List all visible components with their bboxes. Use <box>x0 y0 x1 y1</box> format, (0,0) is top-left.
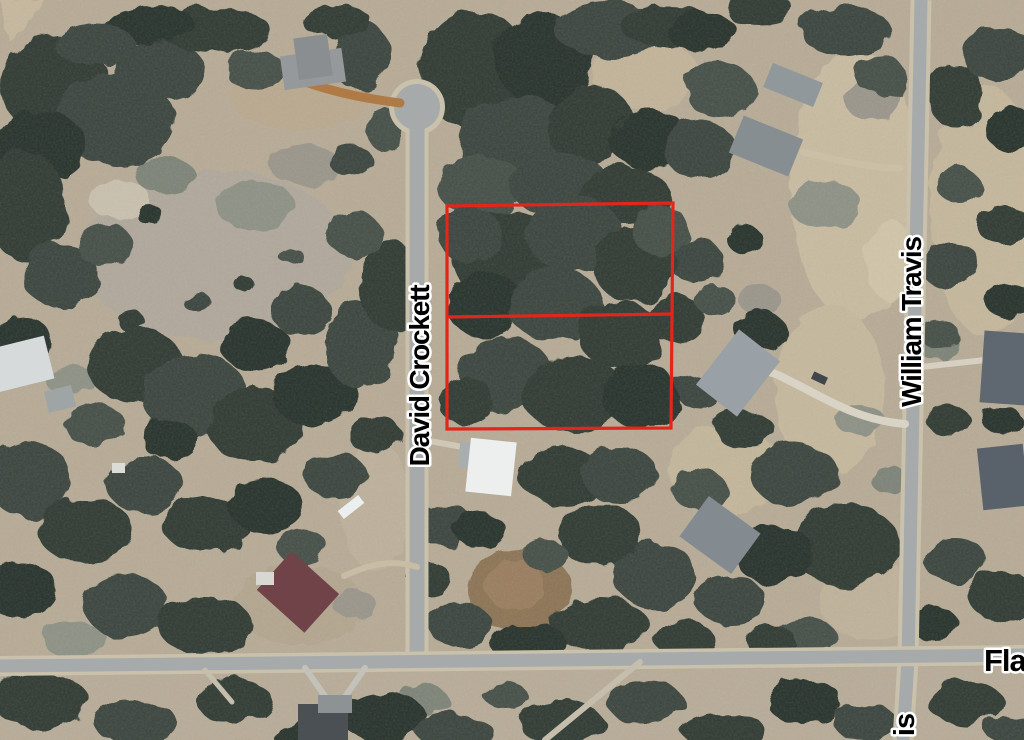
building-roof <box>980 330 1024 405</box>
building-roof <box>977 444 1024 510</box>
street-label-travis-partial: is <box>889 714 921 736</box>
building-roof <box>293 34 333 80</box>
street-label-william-travis: William Travis <box>896 237 927 407</box>
satellite-map[interactable]: David Crockett William Travis Fla is <box>0 0 1024 740</box>
street-label-david-crockett: David Crockett <box>404 285 435 467</box>
building-roof <box>112 463 125 473</box>
road-horizontal <box>0 655 1024 666</box>
building-roof <box>256 572 274 585</box>
building-roof <box>465 438 516 497</box>
terrain-texture <box>0 0 1024 740</box>
satellite-map-canvas: David Crockett William Travis Fla is <box>0 0 1024 740</box>
street-label-fla: Fla <box>984 643 1024 678</box>
building-roof <box>318 695 352 713</box>
